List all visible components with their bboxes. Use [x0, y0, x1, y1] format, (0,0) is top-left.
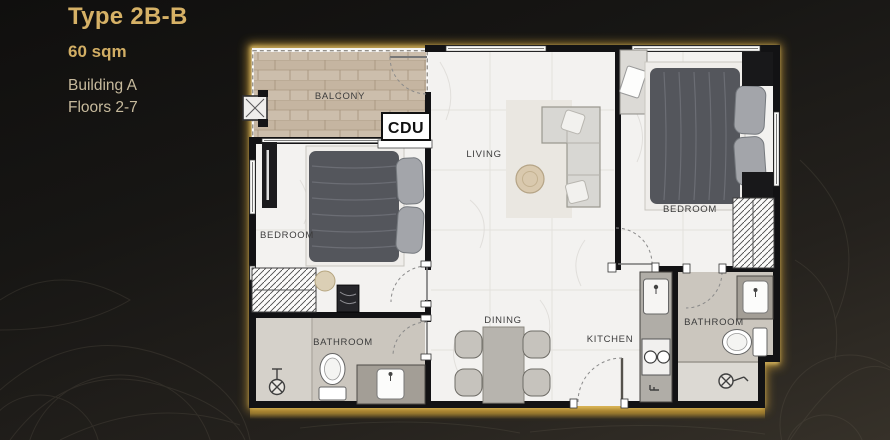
window-bedroom-right-top — [632, 46, 760, 51]
bedroom-right-label: BEDROOM — [663, 204, 717, 215]
floorplan-page: Type 2B-B 60 sqm Building A Floors 2-7 — [0, 0, 890, 440]
bathroom-right-label: BATHROOM — [684, 317, 744, 328]
unit-header: Type 2B-B 60 sqm Building A Floors 2-7 — [68, 3, 188, 117]
wardrobe-right — [733, 198, 774, 268]
vanity-stool — [315, 271, 335, 291]
kitchen-sink — [644, 279, 669, 314]
cdu-label: CDU — [388, 120, 424, 137]
vanity-right — [737, 276, 773, 319]
window-right-wall — [774, 112, 779, 186]
bedroom-left-label: BEDROOM — [260, 230, 314, 241]
tv-panel — [262, 142, 277, 208]
toilet-left — [319, 354, 346, 401]
nightstand — [742, 172, 773, 198]
unit-building: Building A — [68, 77, 188, 95]
pillow — [734, 85, 766, 135]
toilet-right — [723, 328, 768, 356]
wardrobe-left — [252, 268, 316, 312]
nightstand — [742, 52, 773, 86]
throw-pillow — [565, 180, 589, 204]
window-living-top — [446, 46, 546, 51]
cdu-unit: CDU — [378, 113, 432, 148]
kitchen-label: KITCHEN — [587, 334, 634, 345]
balcony-label: BALCONY — [315, 91, 365, 102]
coffee-table — [516, 165, 544, 193]
stove — [642, 339, 670, 375]
dressing-table — [337, 285, 359, 312]
pillow — [395, 206, 424, 254]
pillow — [396, 157, 424, 204]
unit-floors: Floors 2-7 — [68, 99, 188, 117]
desk — [619, 50, 647, 114]
living-label: LIVING — [466, 149, 501, 160]
unit-type-title: Type 2B-B — [68, 3, 188, 31]
dining-table — [483, 327, 524, 403]
unit-area: 60 sqm — [68, 42, 188, 62]
vanity-left — [357, 365, 425, 404]
dining-label: DINING — [484, 315, 521, 326]
bathroom-left-label: BATHROOM — [313, 337, 373, 348]
window-bedroom-left — [250, 160, 255, 214]
